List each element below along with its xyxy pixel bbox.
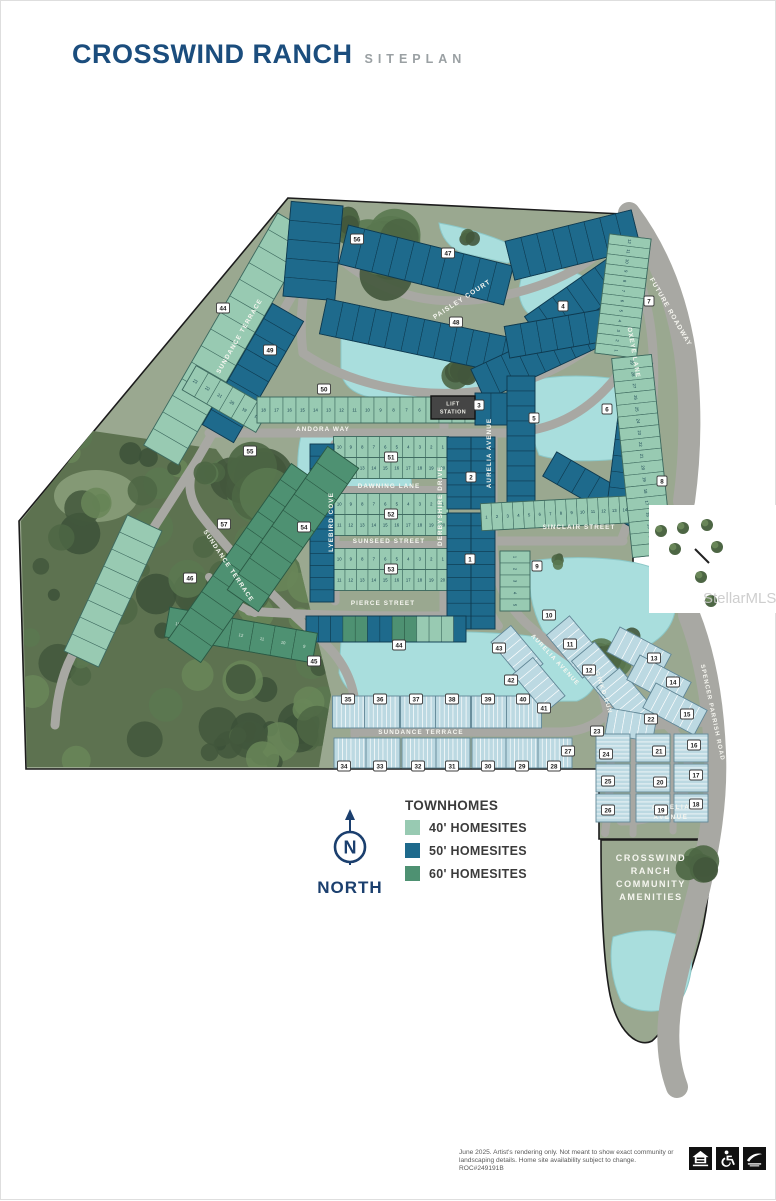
svg-text:15: 15 <box>684 711 691 718</box>
svg-text:11: 11 <box>567 641 574 648</box>
svg-text:11: 11 <box>337 523 342 528</box>
block-badge-51: 51 <box>385 452 398 462</box>
svg-text:15: 15 <box>383 578 388 583</box>
swatch-40-homesites <box>405 820 420 835</box>
lot-block-block9: 12345 <box>500 551 530 611</box>
block-badge-53: 53 <box>385 564 398 574</box>
svg-text:39: 39 <box>485 696 492 703</box>
svg-text:37: 37 <box>413 696 420 703</box>
svg-text:14: 14 <box>371 466 376 471</box>
svg-text:11: 11 <box>337 578 342 583</box>
svg-text:17: 17 <box>274 408 279 413</box>
svg-text:18: 18 <box>693 801 700 808</box>
svg-text:17: 17 <box>406 578 411 583</box>
svg-text:26: 26 <box>605 807 612 814</box>
svg-text:11: 11 <box>352 408 357 413</box>
svg-text:16: 16 <box>287 408 292 413</box>
svg-text:53: 53 <box>388 566 395 573</box>
block-badge-38: 38 <box>446 694 459 704</box>
svg-text:48: 48 <box>453 319 460 326</box>
block-badge-26: 26 <box>602 805 615 815</box>
footer-icons <box>689 1147 766 1170</box>
svg-text:15: 15 <box>300 408 305 413</box>
svg-text:29: 29 <box>519 763 526 770</box>
svg-text:10: 10 <box>337 445 342 450</box>
community-name: CROSSWIND RANCH <box>72 39 353 70</box>
svg-text:55: 55 <box>247 448 254 455</box>
svg-text:10: 10 <box>546 612 553 619</box>
north-label: NORTH <box>315 878 385 898</box>
block-badge-48: 48 <box>450 317 463 327</box>
block-badge-27: 27 <box>562 746 575 756</box>
block-badge-2: 2 <box>466 472 476 482</box>
svg-text:14: 14 <box>371 523 376 528</box>
svg-text:49: 49 <box>267 347 274 354</box>
block-badge-1: 1 <box>465 554 475 564</box>
svg-text:42: 42 <box>508 677 515 684</box>
block-badge-31: 31 <box>446 761 459 771</box>
block-badge-22: 22 <box>645 714 658 724</box>
svg-text:N: N <box>344 838 357 858</box>
block-badge-4: 4 <box>558 301 568 311</box>
block-badge-24: 24 <box>600 749 613 759</box>
svg-text:44: 44 <box>220 305 227 312</box>
block-badge-15: 15 <box>681 709 694 719</box>
svg-text:38: 38 <box>449 696 456 703</box>
block-badge-7: 7 <box>644 296 654 306</box>
svg-text:14: 14 <box>371 578 376 583</box>
map-text-label: RANCH <box>631 866 672 876</box>
street-label: ANDORA WAY <box>296 426 350 433</box>
svg-text:17: 17 <box>406 466 411 471</box>
block-badge-45: 45 <box>308 656 321 666</box>
svg-text:23: 23 <box>594 728 601 735</box>
svg-text:19: 19 <box>429 466 434 471</box>
north-indicator: N NORTH <box>315 807 385 898</box>
svg-text:28: 28 <box>551 763 558 770</box>
svg-text:27: 27 <box>565 748 572 755</box>
svg-text:4: 4 <box>561 303 565 310</box>
svg-text:41: 41 <box>541 705 548 712</box>
block-badge-54: 54 <box>298 522 311 532</box>
svg-text:54: 54 <box>301 524 308 531</box>
road-ginko-col-road-1 <box>633 731 635 834</box>
block-badge-52: 52 <box>385 509 398 519</box>
street-label: DAWNING LANE <box>358 483 421 490</box>
svg-text:19: 19 <box>429 578 434 583</box>
block-badge-17: 17 <box>690 770 703 780</box>
svg-text:20: 20 <box>440 578 445 583</box>
svg-text:36: 36 <box>377 696 384 703</box>
svg-text:20: 20 <box>657 779 664 786</box>
legend-item-60: 60' HOMESITES <box>405 866 527 881</box>
svg-text:STATION: STATION <box>440 410 466 416</box>
block-badge-8: 8 <box>657 476 667 486</box>
svg-text:15: 15 <box>383 523 388 528</box>
block-badge-5: 5 <box>529 413 539 423</box>
block-badge-42: 42 <box>505 675 518 685</box>
block-badge-41: 41 <box>538 703 551 713</box>
svg-text:13: 13 <box>360 523 365 528</box>
lot-block-pierce-south-row <box>306 616 466 642</box>
svg-text:16: 16 <box>394 466 399 471</box>
block-badge-55: 55 <box>244 446 257 456</box>
block-badge-39: 39 <box>482 694 495 704</box>
svg-text:18: 18 <box>417 466 422 471</box>
svg-text:50: 50 <box>321 386 328 393</box>
svg-text:8: 8 <box>660 478 664 485</box>
energy-star-icon <box>743 1147 766 1170</box>
page-title: CROSSWIND RANCH SITEPLAN <box>72 39 466 70</box>
block-badge-56: 56 <box>351 234 364 244</box>
block-badge-9: 9 <box>532 561 542 571</box>
svg-text:57: 57 <box>221 521 228 528</box>
svg-text:14: 14 <box>670 679 677 686</box>
svg-text:44: 44 <box>396 642 403 649</box>
svg-text:5: 5 <box>532 415 536 422</box>
siteplan-subtitle: SITEPLAN <box>365 52 467 66</box>
block-badge-30: 30 <box>482 761 495 771</box>
svg-text:10: 10 <box>337 502 342 507</box>
siteplan-page: { "title": {"main": "CROSSWIND RANCH", "… <box>0 0 776 1200</box>
block-badge-37: 37 <box>410 694 423 704</box>
svg-text:56: 56 <box>354 236 361 243</box>
svg-text:10: 10 <box>365 408 370 413</box>
block-badge-46: 46 <box>184 573 197 583</box>
svg-text:13: 13 <box>360 466 365 471</box>
block-badge-12: 12 <box>583 665 596 675</box>
svg-text:2: 2 <box>469 474 473 481</box>
street-label: LYEBIRD COVE <box>328 492 335 552</box>
disclaimer-text: June 2025. Artist's rendering only. Not … <box>459 1149 679 1173</box>
svg-text:17: 17 <box>406 523 411 528</box>
svg-text:19: 19 <box>658 807 665 814</box>
svg-text:40: 40 <box>520 696 527 703</box>
svg-text:22: 22 <box>648 716 655 723</box>
map-text-label: CROSSWIND <box>616 853 686 863</box>
block-badge-57: 57 <box>218 519 231 529</box>
svg-text:30: 30 <box>485 763 492 770</box>
svg-text:16: 16 <box>394 523 399 528</box>
block-badge-21: 21 <box>653 746 666 756</box>
svg-text:33: 33 <box>377 763 384 770</box>
block-badge-18: 18 <box>690 799 703 809</box>
block-badge-14: 14 <box>667 677 680 687</box>
svg-text:21: 21 <box>656 748 663 755</box>
road-pierce-street <box>249 611 467 616</box>
svg-text:19: 19 <box>429 523 434 528</box>
svg-text:18: 18 <box>417 523 422 528</box>
svg-text:10: 10 <box>337 557 342 562</box>
svg-text:47: 47 <box>445 250 452 257</box>
svg-text:9: 9 <box>535 563 539 570</box>
street-label: SINCLAIR STREET <box>543 524 616 531</box>
block-badge-36: 36 <box>374 694 387 704</box>
svg-text:3: 3 <box>477 402 481 409</box>
svg-text:13: 13 <box>360 578 365 583</box>
legend-item-50: 50' HOMESITES <box>405 843 527 858</box>
lot-block-derb-b1 <box>447 513 471 629</box>
svg-text:12: 12 <box>348 578 353 583</box>
block-badge-44: 44 <box>217 303 230 313</box>
svg-text:12: 12 <box>348 523 353 528</box>
street-label: SUNSEED STREET <box>353 538 425 545</box>
svg-text:18: 18 <box>417 578 422 583</box>
block-badge-25: 25 <box>602 776 615 786</box>
svg-text:45: 45 <box>311 658 318 665</box>
svg-text:17: 17 <box>693 772 700 779</box>
svg-text:LIFT: LIFT <box>446 402 460 408</box>
lift-station: LIFTSTATION <box>431 396 475 419</box>
stellar-mls-watermark: StellarMLS <box>703 590 776 607</box>
block-badge-10: 10 <box>543 610 556 620</box>
siteplan-map: 2322212019181817161514131211109876543211… <box>1 1 776 1201</box>
svg-text:1: 1 <box>468 556 472 563</box>
block-badge-49: 49 <box>264 345 277 355</box>
block-badge-13: 13 <box>648 653 661 663</box>
block-badge-50: 50 <box>318 384 331 394</box>
block-badge-34: 34 <box>338 761 351 771</box>
block-badge-35: 35 <box>342 694 355 704</box>
block-badge-43: 43 <box>493 643 506 653</box>
block-badge-23: 23 <box>591 726 604 736</box>
svg-text:32: 32 <box>415 763 422 770</box>
street-label: AURELIA AVENUE <box>486 418 493 488</box>
block-badge-3: 3 <box>474 400 484 410</box>
svg-text:13: 13 <box>326 408 331 413</box>
svg-text:12: 12 <box>339 408 344 413</box>
svg-text:51: 51 <box>388 454 395 461</box>
block-badge-19: 19 <box>655 805 668 815</box>
compass-icon: N <box>315 807 385 871</box>
block-badge-20: 20 <box>654 777 667 787</box>
block-badge-40: 40 <box>517 694 530 704</box>
swatch-50-homesites <box>405 843 420 858</box>
swatch-60-homesites <box>405 866 420 881</box>
legend-header-townhomes: TOWNHOMES <box>405 798 527 813</box>
svg-text:43: 43 <box>496 645 503 652</box>
block-badge-32: 32 <box>412 761 425 771</box>
svg-text:16: 16 <box>691 742 698 749</box>
svg-text:34: 34 <box>341 763 348 770</box>
block-badge-47: 47 <box>442 248 455 258</box>
svg-text:46: 46 <box>187 575 194 582</box>
svg-text:12: 12 <box>586 667 593 674</box>
legend-item-40: 40' HOMESITES <box>405 820 527 835</box>
block-badge-33: 33 <box>374 761 387 771</box>
svg-text:16: 16 <box>394 578 399 583</box>
street-label: SUNDANCE TERRACE <box>378 729 463 736</box>
street-label: DERBYSHIRE DRIVE <box>437 466 444 546</box>
svg-text:7: 7 <box>647 298 651 305</box>
svg-text:6: 6 <box>605 406 609 413</box>
block-badge-44: 44 <box>393 640 406 650</box>
map-text-label: COMMUNITY <box>616 879 686 889</box>
block-badge-16: 16 <box>688 740 701 750</box>
block-badge-28: 28 <box>548 761 561 771</box>
accessibility-icon <box>716 1147 739 1170</box>
svg-text:31: 31 <box>449 763 456 770</box>
equal-housing-icon <box>689 1147 712 1170</box>
svg-text:25: 25 <box>605 778 612 785</box>
legend: TOWNHOMES 40' HOMESITES 50' HOMESITES 60… <box>405 798 527 889</box>
map-text-label: AMENITIES <box>619 892 682 902</box>
block-badge-6: 6 <box>602 404 612 414</box>
block-badge-11: 11 <box>564 639 577 649</box>
svg-text:24: 24 <box>603 751 610 758</box>
svg-text:13: 13 <box>651 655 658 662</box>
svg-text:15: 15 <box>383 466 388 471</box>
lot-block-culdesac-wedge <box>283 201 343 300</box>
svg-text:52: 52 <box>388 511 395 518</box>
svg-text:18: 18 <box>261 408 266 413</box>
street-label: PIERCE STREET <box>351 600 415 607</box>
svg-text:14: 14 <box>313 408 318 413</box>
block-badge-29: 29 <box>516 761 529 771</box>
svg-text:35: 35 <box>345 696 352 703</box>
